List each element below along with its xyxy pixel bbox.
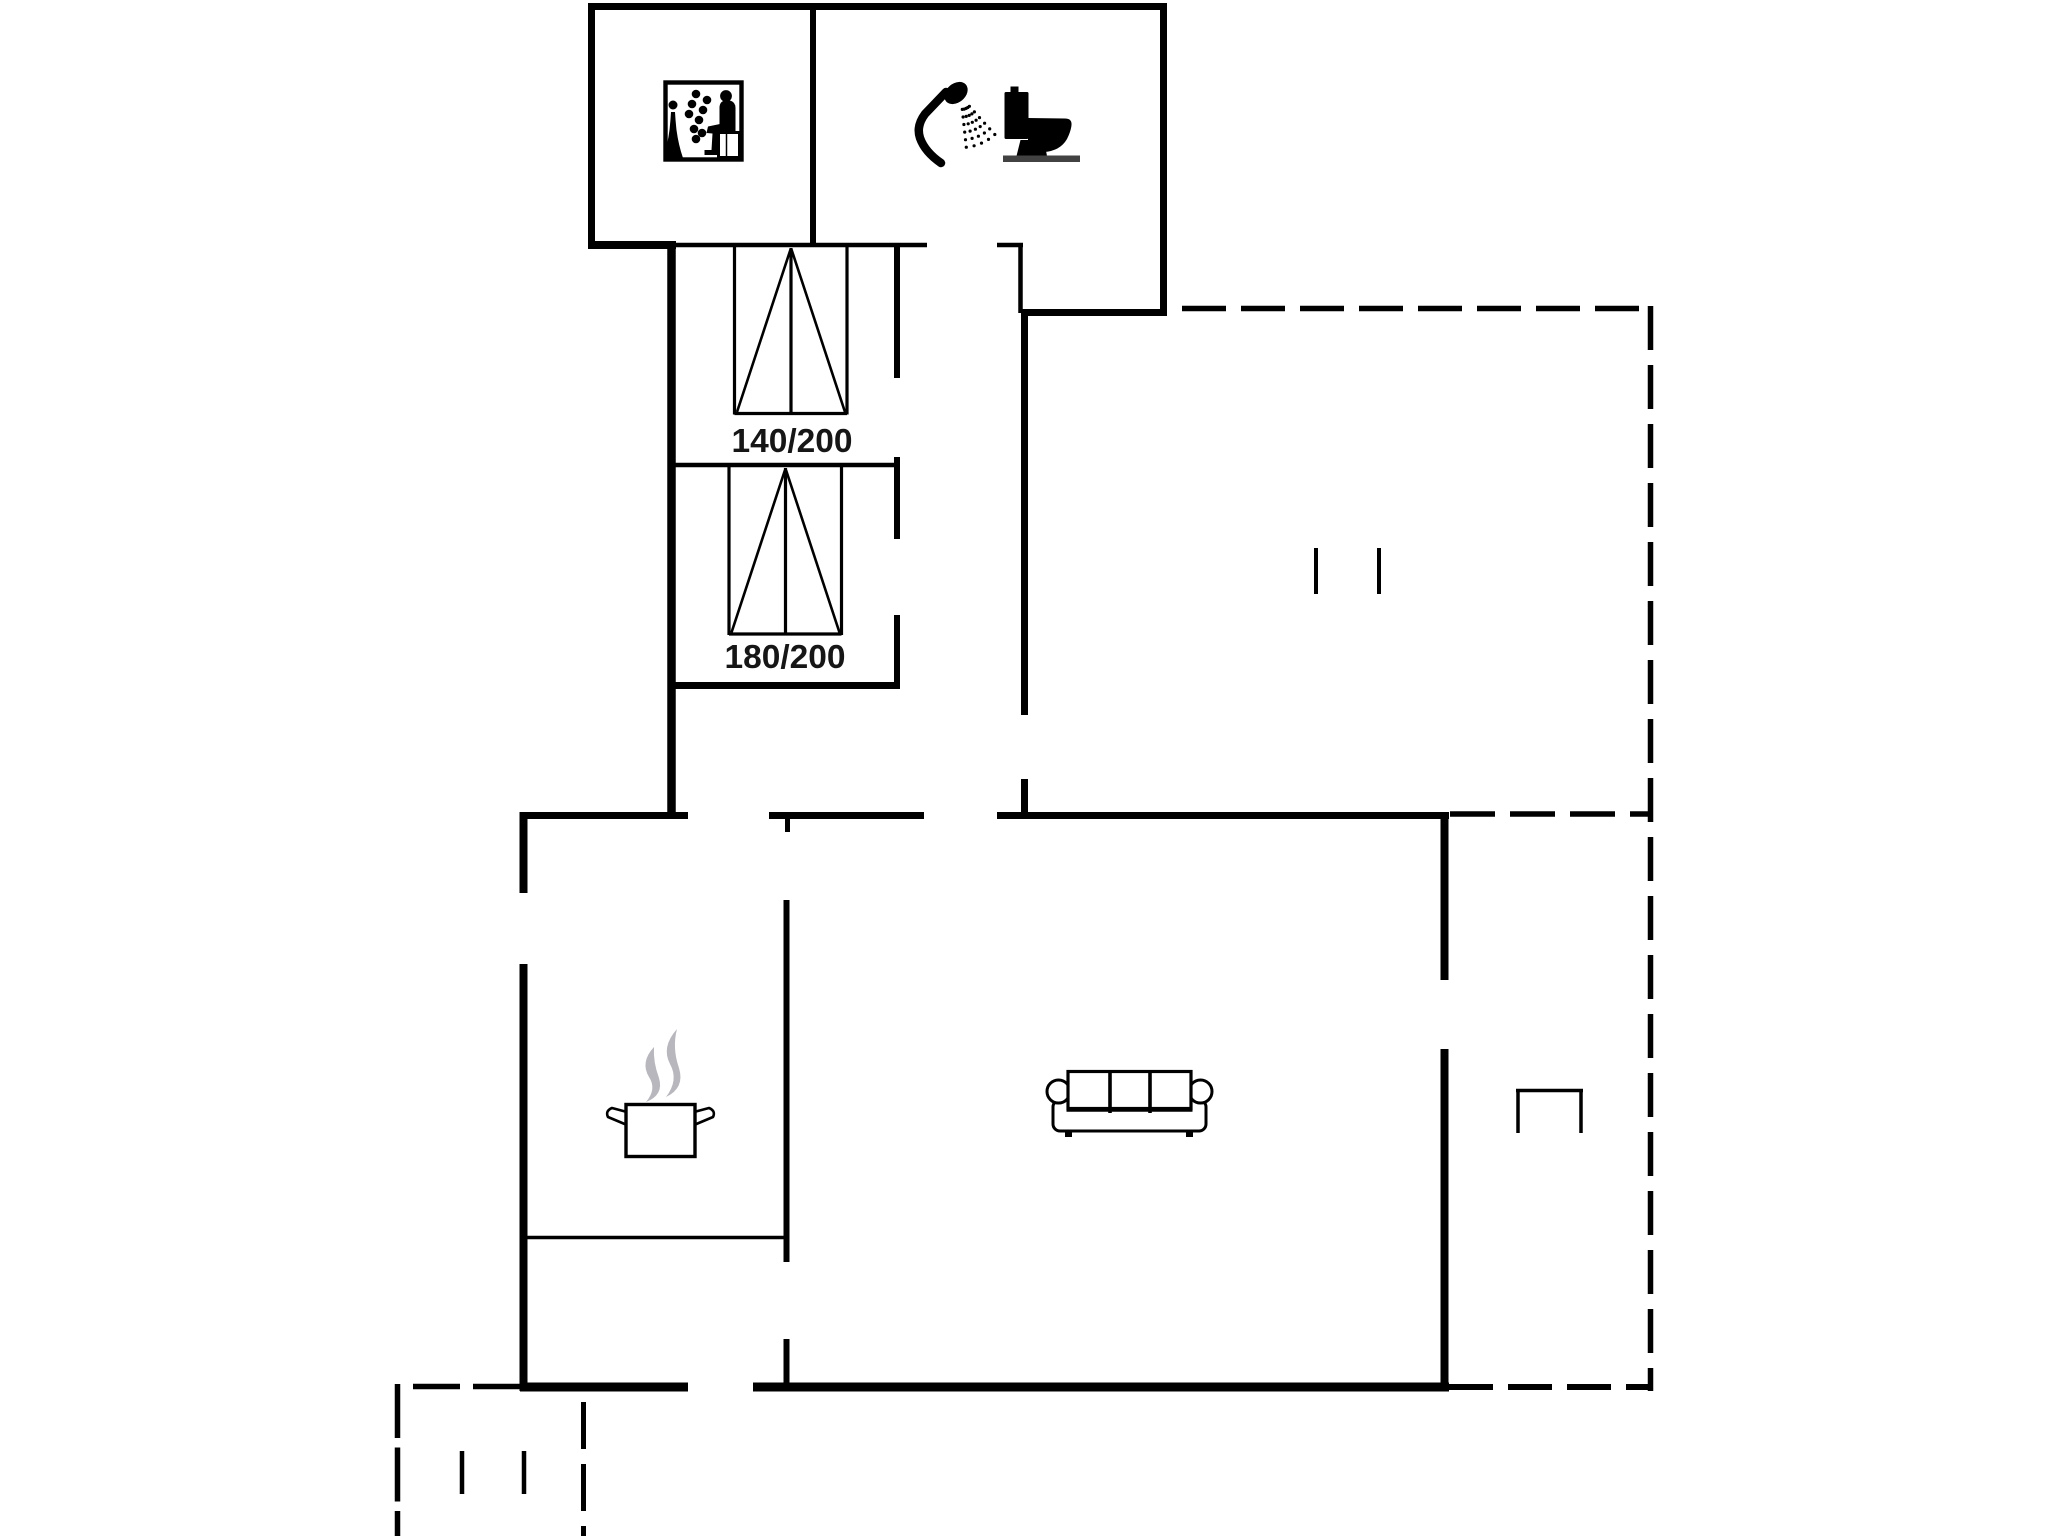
svg-text:140/200: 140/200 — [731, 423, 852, 460]
svg-text:180/200: 180/200 — [724, 639, 845, 676]
